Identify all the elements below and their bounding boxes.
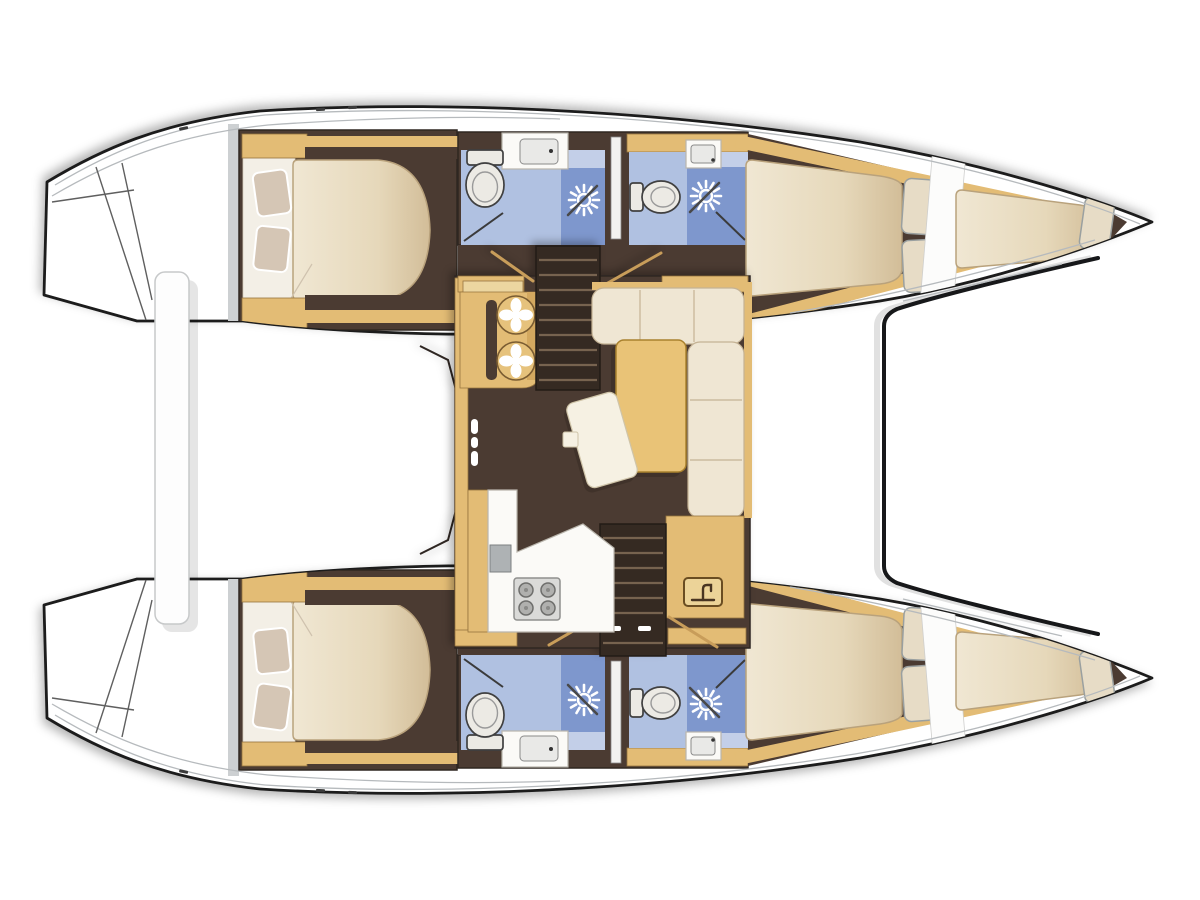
sofa-seat xyxy=(592,288,744,344)
sofa-back xyxy=(744,286,752,518)
stool xyxy=(563,432,578,447)
foredeck xyxy=(877,258,1098,636)
stove-4-burner-icon xyxy=(514,578,560,620)
catamaran-floor-plan xyxy=(0,0,1200,900)
fridge xyxy=(490,545,511,572)
aft-deck-slat xyxy=(155,272,198,632)
stairs xyxy=(536,246,600,390)
slat xyxy=(155,272,189,624)
sofa-seat xyxy=(688,342,744,518)
counter-slot xyxy=(486,300,497,380)
windscreen-outline xyxy=(884,258,1098,634)
galley-hob-unit xyxy=(460,281,540,388)
wood-trim xyxy=(468,490,488,632)
handhold xyxy=(638,626,651,631)
locker-handle xyxy=(471,451,478,466)
locker-handle xyxy=(471,437,478,448)
counter-edge xyxy=(463,281,523,293)
floor-plan-canvas xyxy=(0,0,1200,900)
sink-cabinet xyxy=(666,516,744,618)
locker-handle xyxy=(471,419,478,434)
windscreen-shadow xyxy=(877,258,1091,634)
saloon xyxy=(455,246,752,656)
